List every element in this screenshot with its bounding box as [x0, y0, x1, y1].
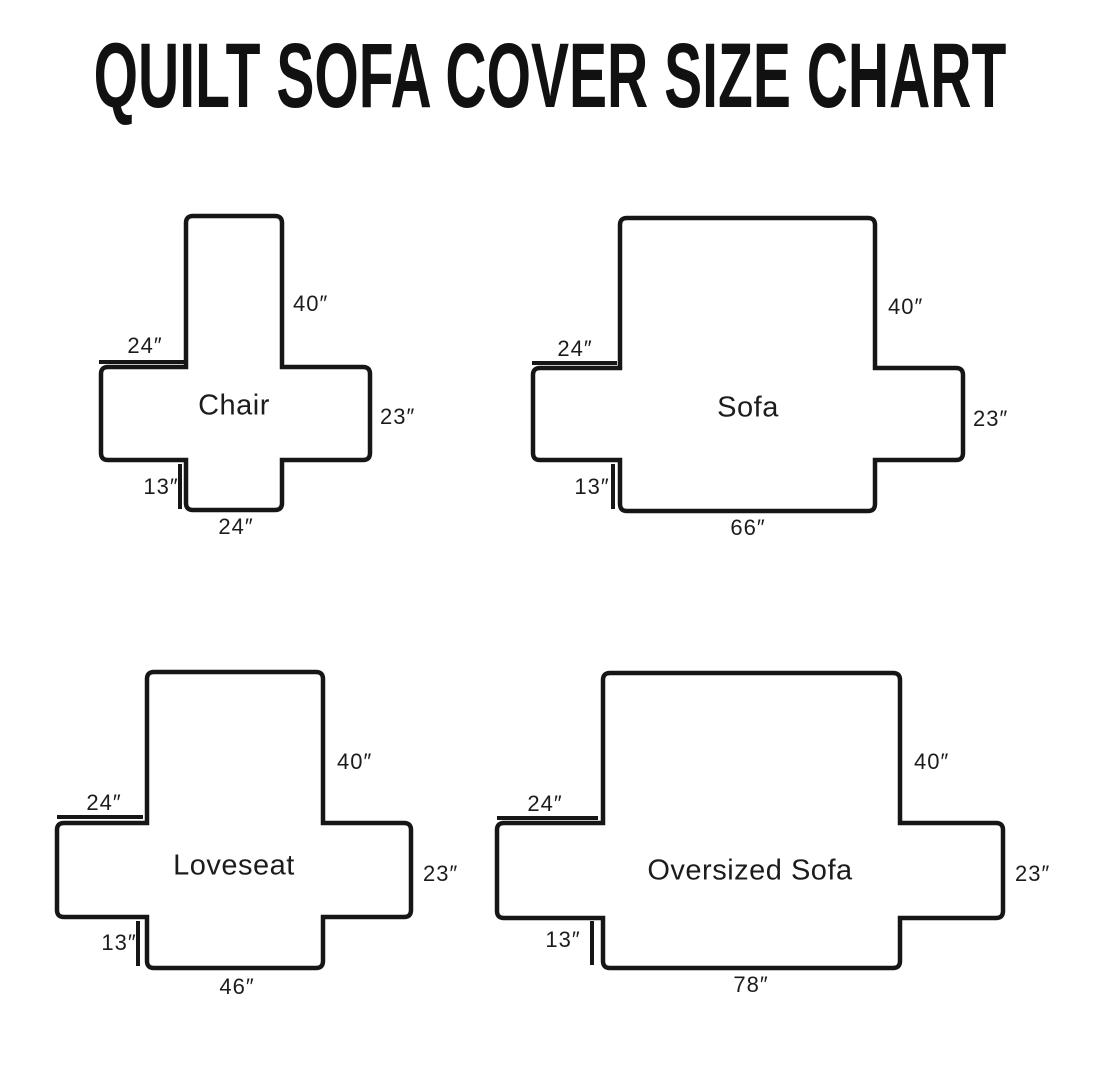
- loveseat-bottom-width-label: 46″: [219, 974, 254, 1000]
- loveseat-front-skirt-height-label: 13″: [101, 930, 136, 956]
- sofa-front-skirt-height-label: 13″: [574, 474, 609, 500]
- sofa-arm-side-depth-label: 23″: [973, 406, 1008, 432]
- size-chart-page: QUILT SOFA COVER SIZE CHART Chair 40″ 24…: [0, 0, 1100, 1092]
- sofa-name-label: Sofa: [717, 392, 779, 425]
- oversized-sofa-outline: [497, 673, 1003, 968]
- loveseat-name-label: Loveseat: [173, 850, 295, 883]
- oversized-sofa-arm-top-width-label: 24″: [527, 791, 562, 817]
- chair-back-height-label: 40″: [293, 291, 328, 317]
- chair-bottom-width-label: 24″: [218, 514, 253, 540]
- oversized-sofa-back-height-label: 40″: [914, 749, 949, 775]
- chair-name-label: Chair: [198, 390, 270, 423]
- chair-front-skirt-height-label: 13″: [143, 474, 178, 500]
- oversized-sofa-front-skirt-height-label: 13″: [545, 927, 580, 953]
- sofa-arm-top-width-label: 24″: [557, 336, 592, 362]
- loveseat-outline: [57, 672, 411, 968]
- sofa-bottom-width-label: 66″: [730, 515, 765, 541]
- loveseat-arm-side-depth-label: 23″: [423, 861, 458, 887]
- oversized-sofa-bottom-width-label: 78″: [733, 972, 768, 998]
- loveseat-arm-top-width-label: 24″: [86, 790, 121, 816]
- chair-arm-side-depth-label: 23″: [380, 404, 415, 430]
- loveseat-back-height-label: 40″: [337, 749, 372, 775]
- sofa-back-height-label: 40″: [888, 294, 923, 320]
- chair-arm-top-width-label: 24″: [127, 333, 162, 359]
- oversized-sofa-name-label: Oversized Sofa: [647, 855, 852, 888]
- oversized-sofa-arm-side-depth-label: 23″: [1015, 861, 1050, 887]
